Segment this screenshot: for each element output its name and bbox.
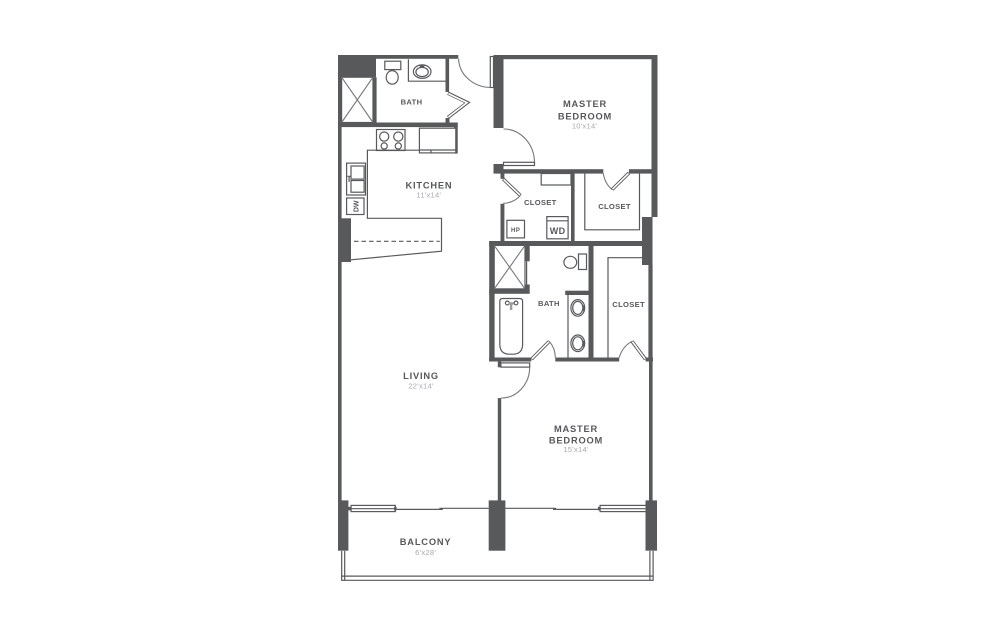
svg-text:CLOSET: CLOSET	[598, 202, 631, 211]
svg-text:BEDROOM: BEDROOM	[549, 435, 603, 445]
svg-text:BALCONY: BALCONY	[400, 537, 452, 547]
svg-text:22'x14': 22'x14'	[408, 382, 434, 391]
svg-text:CLOSET: CLOSET	[612, 300, 645, 309]
svg-text:MASTER: MASTER	[563, 99, 607, 109]
svg-text:10'x14': 10'x14'	[572, 121, 598, 130]
svg-text:DW: DW	[354, 200, 361, 212]
svg-text:BATH: BATH	[538, 299, 560, 308]
svg-text:KITCHEN: KITCHEN	[405, 181, 452, 191]
svg-text:MASTER: MASTER	[554, 424, 598, 434]
svg-text:11'x14': 11'x14'	[416, 191, 441, 200]
svg-text:CLOSET: CLOSET	[524, 198, 557, 207]
svg-text:BATH: BATH	[401, 98, 423, 107]
svg-text:6'x28': 6'x28'	[415, 548, 436, 557]
svg-text:BEDROOM: BEDROOM	[558, 112, 612, 122]
svg-text:LIVING: LIVING	[403, 371, 439, 381]
svg-text:15'x14': 15'x14'	[563, 445, 589, 454]
svg-text:WD: WD	[550, 226, 566, 236]
svg-text:HP: HP	[511, 228, 520, 234]
